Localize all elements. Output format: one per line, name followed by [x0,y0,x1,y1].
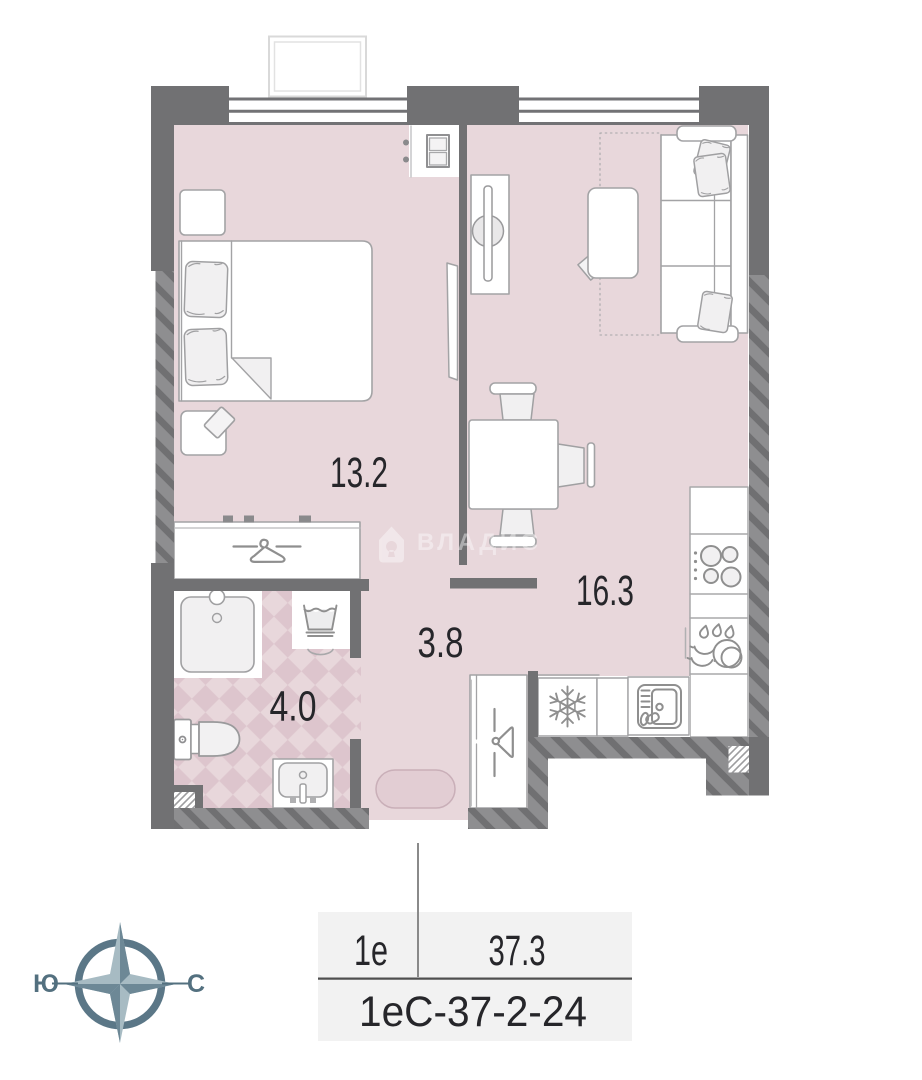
svg-text:13.2: 13.2 [330,449,388,497]
svg-text:16.3: 16.3 [576,567,634,615]
svg-text:4.0: 4.0 [270,683,317,731]
svg-text:ВЛАДИС: ВЛАДИС [417,529,541,556]
svg-text:1еС-37-2-24: 1еС-37-2-24 [359,988,587,1036]
svg-text:37.3: 37.3 [489,927,546,975]
svg-text:С: С [187,970,205,998]
svg-text:Ю: Ю [33,970,59,998]
svg-text:3.8: 3.8 [418,619,464,667]
svg-text:1е: 1е [354,927,388,975]
